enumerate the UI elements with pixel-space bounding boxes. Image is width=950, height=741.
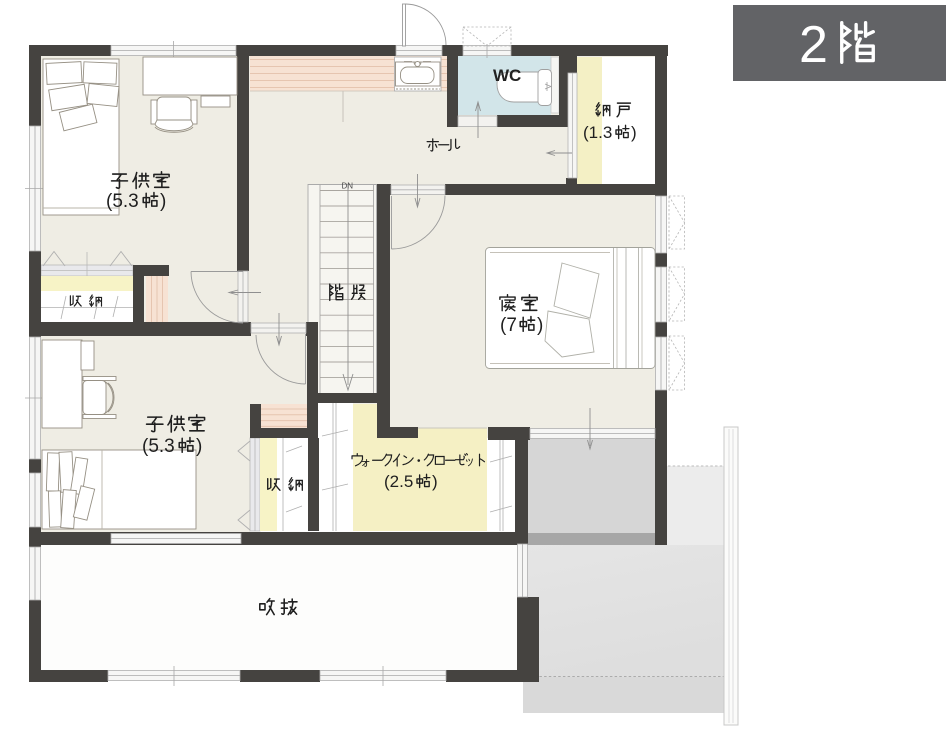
svg-text:WC: WC	[493, 66, 521, 85]
svg-text:): )	[537, 315, 543, 336]
svg-text:): )	[432, 472, 438, 491]
svg-text:): )	[631, 123, 637, 142]
svg-text:(5.3: (5.3	[106, 191, 139, 212]
svg-text:): )	[196, 436, 202, 457]
svg-text:(2.5: (2.5	[384, 472, 413, 491]
svg-text:(7: (7	[500, 315, 517, 336]
svg-text:): )	[160, 191, 166, 212]
svg-text:2: 2	[799, 16, 828, 74]
svg-text:(1.3: (1.3	[583, 123, 612, 142]
svg-text:DN: DN	[342, 182, 354, 191]
svg-text:(5.3: (5.3	[142, 436, 175, 457]
